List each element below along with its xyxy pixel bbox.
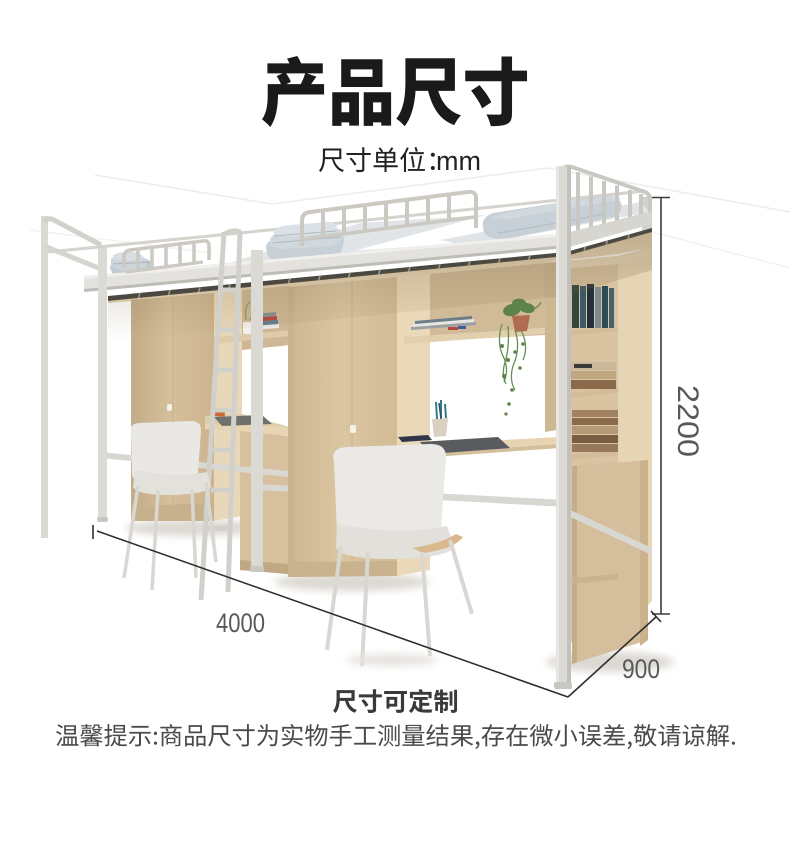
svg-text:2200: 2200	[671, 385, 704, 457]
svg-text:4000: 4000	[216, 608, 265, 638]
svg-text:mm: mm	[436, 146, 481, 176]
svg-text:900: 900	[622, 654, 660, 684]
